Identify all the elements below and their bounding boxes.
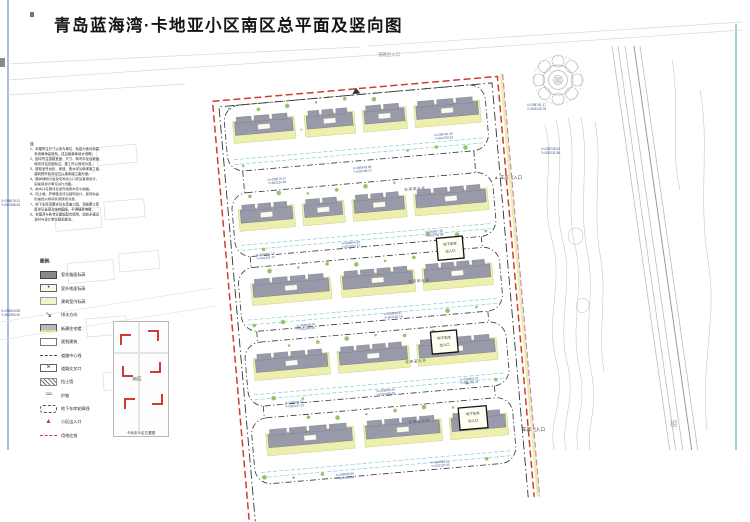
legend-item-label: 室外路面标高 (61, 272, 85, 278)
plaza-flower-feature (533, 55, 583, 105)
drawing-sheet: 道路出入口▲车库出入口车库出入口相X=298741.17Y=503125.78X… (0, 0, 750, 450)
connector-road (250, 257, 251, 268)
tree-dot (412, 255, 416, 259)
legend-item: ↘排水方向 (40, 308, 103, 321)
tree-dot (262, 475, 267, 480)
stamp-mark (30, 12, 34, 17)
building-wing (393, 266, 407, 273)
building-wing (322, 197, 336, 204)
building-name-tag (304, 435, 316, 441)
connector-road (474, 151, 476, 173)
coordinate-label: X=298604.52Y=502137.29 (285, 400, 304, 409)
building-wing (274, 201, 287, 208)
tree-dot (485, 457, 489, 461)
garage-entrance-box: 地下车库出入口 (436, 236, 464, 260)
building-wing (272, 277, 287, 284)
legend-title: 图例: (40, 257, 87, 264)
keymap-red-mark (150, 362, 161, 373)
legend-item-label: 小区出入口 (61, 419, 81, 425)
building-name-tag (445, 195, 457, 201)
garage-box-label: 出入口 (439, 342, 450, 348)
building-wing (305, 198, 319, 205)
coordinate-label: X=298701.46Y=502238.91 (434, 132, 453, 141)
tree-dot (463, 145, 468, 150)
road-centerline-icon (40, 355, 57, 356)
building-cluster (232, 112, 296, 143)
building-wing (426, 263, 439, 270)
legend-item: 新建住宅楼 (40, 322, 103, 335)
garage-outline-icon (40, 405, 57, 413)
building-wing (388, 342, 401, 349)
building-wing (308, 273, 323, 280)
coordinate-label: X=298630.87Y=502192.16 (384, 311, 403, 320)
building-wing (289, 426, 306, 433)
legend-item-label: 地下车库轮廓线 (61, 406, 90, 412)
legend-item: 室外路面标高 (40, 268, 103, 281)
coordinate-label: X=298606.94Y=502188.83 (376, 388, 395, 397)
tree-dot (288, 344, 291, 347)
legend-item: 用地红线 (40, 429, 103, 442)
pavement-elevation-icon (40, 271, 57, 279)
building-cluster (238, 201, 296, 232)
road-intersection-icon: × (40, 364, 57, 372)
location-keymap: 南区 卡地亚小区位置图 (113, 321, 169, 437)
tree-dot (393, 409, 397, 413)
tree-dot (248, 194, 252, 198)
building-wing (340, 346, 353, 353)
building-cluster (250, 273, 332, 306)
coordinate-label: X=298580.66Y=502145.98 (335, 471, 354, 480)
keymap-caption: 卡地亚小区位置图 (113, 430, 169, 435)
building-wing (254, 278, 269, 285)
shrub-dot (300, 129, 302, 131)
legend-item-label: 规划建筑 (61, 339, 77, 345)
connector-road (243, 171, 245, 193)
building-cluster (422, 259, 494, 291)
building-wing (336, 108, 347, 115)
building-wing (486, 410, 500, 417)
building-wing (236, 116, 251, 123)
connector-road (263, 406, 264, 418)
drainage-arrow-icon: ↘ (40, 311, 57, 319)
tree-dot (374, 334, 377, 337)
building-wing (386, 192, 399, 199)
keymap-area-label: 南区 (132, 375, 142, 382)
building-cluster (265, 422, 355, 456)
connector-road (488, 311, 489, 322)
legend-item-label: 排水方向 (61, 312, 77, 318)
tree-dot (228, 108, 231, 111)
building-wing (456, 336, 471, 343)
new-residential-icon (40, 324, 57, 332)
garage-box-label: 出入口 (445, 248, 456, 254)
building-name-tag (372, 277, 384, 283)
building-name-tag (378, 113, 390, 119)
tree-dot (292, 476, 295, 479)
annotation-text: Y=502988.05 (1, 203, 20, 207)
legend-item-label: 挡土墙 (61, 379, 73, 385)
building-wing (356, 345, 369, 352)
building-wing (456, 97, 473, 104)
building-wing (466, 184, 480, 191)
tree-dot (434, 145, 438, 149)
building-name-tag (373, 202, 385, 208)
building-cluster (363, 415, 443, 448)
land-redline-icon (40, 435, 57, 436)
planned-building-icon (40, 338, 57, 346)
building-wing (254, 114, 269, 121)
tree-dot (262, 247, 266, 251)
note-line: 及时与设计单位联系解决。 (30, 218, 151, 223)
slope-icon: ≈≈ (40, 391, 57, 399)
connector-road (494, 386, 495, 398)
building-name-tag (317, 207, 329, 213)
building-wing (417, 100, 434, 107)
site-plan: 车库采光井车库采光井车库采光井车库采光井地下车库出入口地下车库出入口地下车库出入… (206, 68, 542, 522)
building-name-tag (323, 118, 335, 124)
building-wing (372, 343, 385, 350)
building-cluster (351, 191, 407, 222)
coordinate-label: X=298609.33Y=502240.47 (460, 376, 479, 385)
building-wing (384, 418, 399, 425)
tree-dot (271, 396, 276, 401)
tree-dot (320, 472, 324, 476)
legend-item: ×道路交叉口 (40, 362, 103, 375)
tree-dot (325, 262, 329, 266)
tree-dot (354, 262, 359, 267)
building-cluster (301, 196, 345, 226)
building-wing (377, 267, 391, 274)
legend-item-label: 室外地面标高 (61, 285, 85, 291)
tree-dot (267, 269, 272, 274)
west-road-lines (0, 288, 216, 340)
building-wing (456, 261, 469, 268)
tree-dot (306, 192, 309, 195)
annotation-text: 道路出入口 (378, 51, 400, 58)
annotation-text: Y=502994.40 (1, 313, 20, 317)
utility-dash-line (261, 451, 510, 473)
building-wing (257, 353, 271, 360)
coordinate-label: X=298678.09Y=502186.22 (353, 165, 372, 174)
tree-dot (335, 415, 340, 420)
building-wing (308, 110, 319, 117)
tree-dot (297, 266, 300, 269)
legend-item-label: 道路中心线 (61, 352, 81, 358)
tree-dot (363, 184, 368, 189)
utility-dash-line (261, 456, 510, 478)
tree-dot (365, 413, 368, 416)
coordinate-label: X=298628.40Y=502140.55 (296, 322, 315, 331)
legend-item: ≈≈护坡 (40, 389, 103, 402)
ground-elevation-icon: • (40, 284, 57, 292)
tree-dot (371, 97, 376, 102)
tree-dot (256, 107, 260, 111)
legend-item-label: 用地红线 (61, 432, 77, 438)
building-wing (383, 103, 398, 110)
tree-dot (276, 190, 281, 195)
legend-item: 挡土墙 (40, 375, 103, 388)
garage-entrance-box: 地下车库出入口 (430, 330, 458, 354)
legend-item-label: 新建住宅楼 (61, 325, 81, 331)
legend-item: 道路中心线 (40, 348, 103, 361)
keymap-red-mark (124, 398, 135, 409)
tree-dot (445, 308, 450, 313)
coordinate-label: X=298654.83Y=502183.37 (341, 240, 360, 249)
garage-box-label: 出入口 (468, 417, 479, 423)
building-cluster (253, 348, 331, 381)
building-wing (272, 113, 287, 120)
annotation-text: Y=503125.78 (527, 107, 546, 111)
tree-dot (452, 406, 455, 409)
building-wing (309, 425, 326, 432)
tree-dot (421, 405, 426, 410)
building-wing (450, 186, 464, 193)
notes-lines: 1、本图所注尺寸以米为单位，标高为绝对标高， 采用黄海高程系，详见各单体设计说明… (30, 147, 151, 223)
annotation-text: 相 (670, 419, 677, 428)
building-name-tag (367, 353, 379, 359)
tree-dot (393, 181, 396, 184)
tree-dot (315, 101, 318, 104)
retaining-wall-icon (40, 378, 57, 386)
building-wing (472, 259, 485, 266)
tree-dot (384, 259, 387, 262)
tree-dot (316, 340, 320, 344)
legend-rows: 室外路面标高•室外地面标高建筑室内标高↘排水方向新建住宅楼规划建筑道路中心线×道… (40, 268, 103, 442)
utility-dash-line (234, 143, 483, 165)
building-name-tag (397, 426, 409, 432)
tree-dot (343, 97, 347, 101)
legend-item-label: 护坡 (61, 392, 69, 398)
legend-item: ▲小区出入口 (40, 415, 103, 428)
keymap-red-mark (148, 330, 159, 341)
legend-item: 建筑室内标高 (40, 295, 103, 308)
building-wing (344, 270, 358, 277)
site-plan-svg: 车库采光井车库采光井车库采光井车库采光井地下车库出入口地下车库出入口地下车库出入… (206, 68, 542, 522)
building-wing (355, 194, 368, 201)
building-wing (242, 204, 255, 211)
legend-item: •室外地面标高 (40, 281, 103, 294)
building-wing (360, 269, 374, 276)
building-wing (441, 262, 454, 269)
building-name-tag (285, 285, 297, 291)
building-cluster (336, 341, 410, 373)
keymap-red-mark (152, 394, 163, 405)
legend-item: 规划建筑 (40, 335, 103, 348)
building-wing (290, 275, 305, 282)
garage-entrance-box: 地下车库出入口 (458, 406, 488, 430)
tree-dot (306, 415, 310, 419)
keymap-red-mark (120, 334, 131, 345)
keymap-street (114, 352, 168, 354)
tree-dot (484, 230, 487, 233)
drawing-title: 青岛蓝海湾·卡地亚小区南区总平面及竖向图 (54, 12, 403, 36)
building-cluster (340, 265, 416, 297)
building-wing (365, 105, 380, 112)
legend-item-label: 道路交叉口 (61, 365, 81, 371)
building-wing (329, 423, 346, 430)
annotation-text: Y=503131.96 (541, 151, 560, 155)
utility-dash-line (248, 303, 497, 325)
coordinate-label: X=298657.25Y=502235.08 (425, 229, 444, 238)
building-name-tag (285, 360, 297, 366)
tree-dot (335, 188, 339, 192)
connector-road (481, 236, 482, 247)
tree-dot (475, 306, 478, 309)
building-wing (367, 420, 382, 427)
building-wing (269, 428, 286, 435)
building-cluster (413, 96, 481, 128)
building-name-tag (260, 212, 272, 218)
connector-road (257, 331, 258, 342)
building-cluster (362, 103, 408, 133)
tree-dot (285, 103, 290, 108)
building-wing (274, 352, 288, 359)
building-cluster (304, 107, 356, 137)
building-wing (437, 98, 454, 105)
building-wing (291, 350, 305, 357)
building-wing (322, 109, 333, 116)
coordinate-label: X=298583.11Y=502197.60 (431, 459, 450, 468)
building-name-tag (451, 270, 463, 276)
building-wing (474, 334, 489, 341)
building-wing (258, 203, 271, 210)
coordinate-label: X=298676.31Y=502134.60 (267, 176, 286, 185)
coordinate-label: X=298652.18Y=502131.74 (256, 251, 275, 260)
tree-dot (344, 336, 349, 341)
tree-dot (242, 164, 245, 167)
building-wing (433, 187, 447, 194)
tree-dot (403, 334, 407, 338)
building-wing (308, 349, 322, 356)
building-name-tag (441, 107, 453, 113)
edge-mark (0, 58, 5, 67)
tree-dot (281, 320, 286, 325)
legend-item: 地下车库轮廓线 (40, 402, 103, 415)
entrance-icon: ▲ (40, 418, 57, 426)
utility-dash-line (234, 138, 483, 160)
building-name-tag (258, 123, 270, 129)
building-elevation-icon (40, 297, 57, 305)
legend-item-label: 建筑室内标高 (61, 298, 85, 304)
building-wing (371, 193, 384, 200)
east-road-lines (612, 46, 698, 450)
legend-panel: 图例: 室外路面标高•室外地面标高建筑室内标高↘排水方向新建住宅楼规划建筑道路中… (40, 257, 103, 442)
